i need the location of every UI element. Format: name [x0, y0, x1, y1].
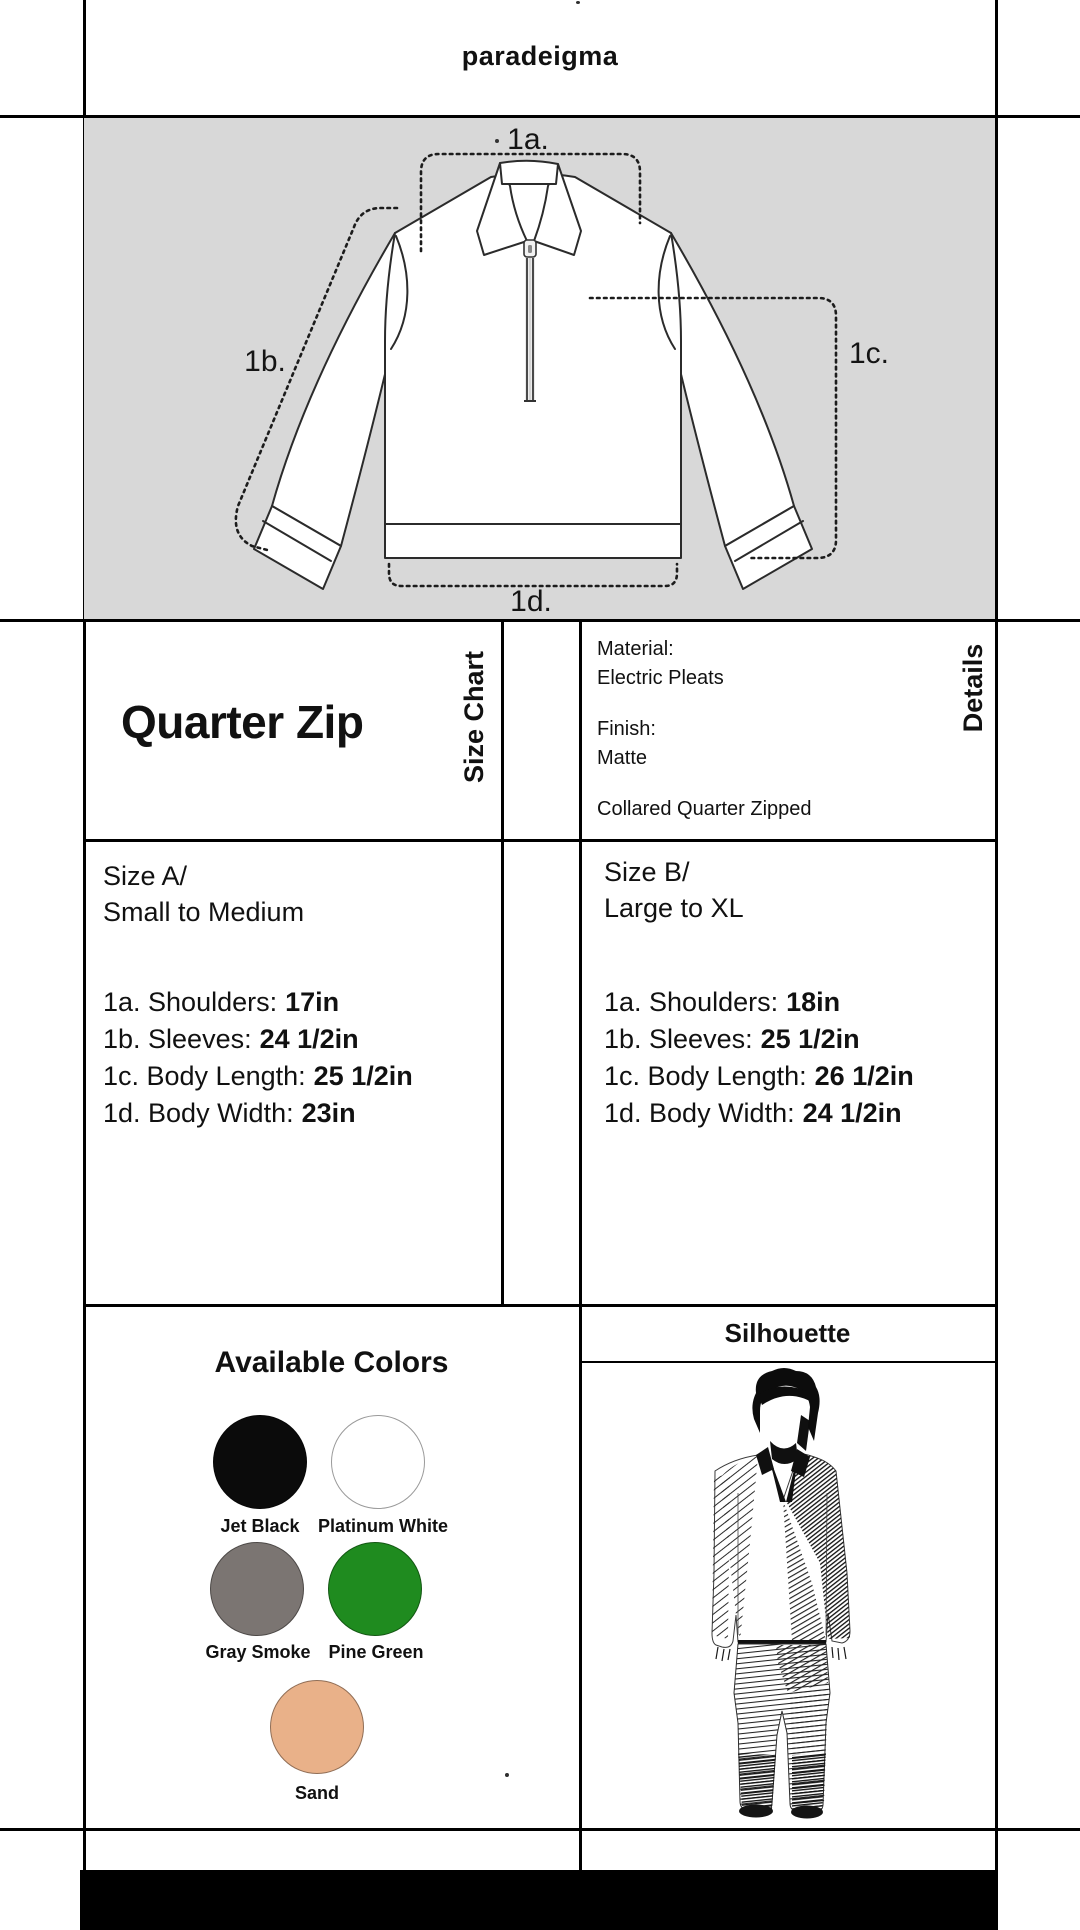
measurement-row: 1c. Body Length:25 1/2in — [103, 1058, 413, 1095]
available-colors-title: Available Colors — [84, 1346, 579, 1380]
size-b-range: Large to XL — [604, 890, 744, 926]
border-right — [995, 0, 998, 1930]
measurement-label: 1b. Sleeves: — [103, 1024, 252, 1054]
measurement-label: 1a. Shoulders: — [604, 987, 778, 1017]
color-swatch-platinum-white[interactable] — [331, 1415, 425, 1509]
divider-title-row-bottom — [83, 839, 998, 842]
measure-line-body-width — [389, 564, 677, 586]
measurement-value: 25 1/2in — [314, 1061, 413, 1091]
measurement-label: 1b. Sleeves: — [604, 1024, 753, 1054]
measurement-row: 1c. Body Length:26 1/2in — [604, 1058, 914, 1095]
measurement-row: 1d. Body Width:23in — [103, 1095, 413, 1132]
measurement-label: 1d. Body Width: — [103, 1098, 294, 1128]
swatch-label-sand: Sand — [237, 1783, 397, 1804]
product-title: Quarter Zip — [121, 695, 363, 749]
color-swatch-jet-black[interactable] — [213, 1415, 307, 1509]
material-value: Electric Pleats — [597, 664, 977, 693]
measurement-row: 1b. Sleeves:25 1/2in — [604, 1021, 914, 1058]
size-chart-vertical-label: Size Chart — [459, 607, 491, 827]
finish-label: Finish: — [597, 715, 977, 744]
measurement-row: 1a. Shoulders:18in — [604, 984, 914, 1021]
measurement-value: 25 1/2in — [761, 1024, 860, 1054]
brand-title: paradeigma — [0, 41, 1080, 72]
footer-bar — [80, 1870, 998, 1930]
divider-sizes-bottom — [83, 1304, 995, 1307]
measurement-row: 1a. Shoulders:17in — [103, 984, 413, 1021]
style-note: Collared Quarter Zipped — [597, 795, 977, 824]
size-b-name: Size B/ — [604, 854, 744, 890]
measurement-label: 1c. Body Length: — [103, 1061, 306, 1091]
measurement-label: 1d. Body Width: — [604, 1098, 795, 1128]
stray-mark-top — [576, 1, 580, 4]
color-swatch-sand[interactable] — [270, 1680, 364, 1774]
measurement-row: 1d. Body Width:24 1/2in — [604, 1095, 914, 1132]
divider-vertical-inner-left — [501, 619, 504, 1306]
size-a-measurements: 1a. Shoulders:17in 1b. Sleeves:24 1/2in … — [103, 984, 413, 1132]
diagram-label-1b: 1b. — [244, 345, 286, 378]
garment-diagram: 1a. 1b. 1c. 1d. — [84, 118, 995, 619]
measurement-value: 26 1/2in — [815, 1061, 914, 1091]
size-b-measurements: 1a. Shoulders:18in 1b. Sleeves:25 1/2in … — [604, 984, 914, 1132]
measurement-label: 1c. Body Length: — [604, 1061, 807, 1091]
measurement-value: 24 1/2in — [260, 1024, 359, 1054]
divider-diagram-bottom — [0, 619, 1080, 622]
divider-footer-top — [0, 1828, 1080, 1831]
swatch-label-pine-green: Pine Green — [296, 1642, 456, 1663]
diagram-label-1a: 1a. — [507, 123, 549, 156]
material-label: Material: — [597, 635, 977, 664]
silhouette-figure — [580, 1363, 995, 1828]
figure-shirt — [712, 1451, 850, 1647]
size-a-range: Small to Medium — [103, 894, 304, 930]
size-chart-page: paradeigma — [0, 0, 1080, 1930]
measurement-row: 1b. Sleeves:24 1/2in — [103, 1021, 413, 1058]
size-a-name: Size A/ — [103, 858, 304, 894]
size-a-heading: Size A/ Small to Medium — [103, 858, 304, 930]
stray-mark-bottom — [505, 1773, 509, 1777]
diagram-label-1d: 1d. — [510, 585, 552, 618]
silhouette-title: Silhouette — [580, 1318, 995, 1349]
swatch-label-platinum-white: Platinum White — [303, 1516, 463, 1537]
measurement-value: 18in — [786, 987, 840, 1017]
diagram-panel: 1a. 1b. 1c. 1d. — [84, 118, 995, 619]
measurement-value: 24 1/2in — [803, 1098, 902, 1128]
size-b-heading: Size B/ Large to XL — [604, 854, 744, 926]
measurement-value: 23in — [302, 1098, 356, 1128]
figure-pants — [734, 1644, 830, 1819]
details-block: Material: Electric Pleats Finish: Matte … — [597, 635, 977, 824]
color-swatch-gray-smoke[interactable] — [210, 1542, 304, 1636]
color-swatch-pine-green[interactable] — [328, 1542, 422, 1636]
measurement-value: 17in — [285, 987, 339, 1017]
measurement-label: 1a. Shoulders: — [103, 987, 277, 1017]
figure-head — [752, 1368, 819, 1441]
stray-mark-diagram — [495, 139, 499, 143]
diagram-label-1c: 1c. — [849, 337, 889, 370]
finish-value: Matte — [597, 744, 977, 773]
